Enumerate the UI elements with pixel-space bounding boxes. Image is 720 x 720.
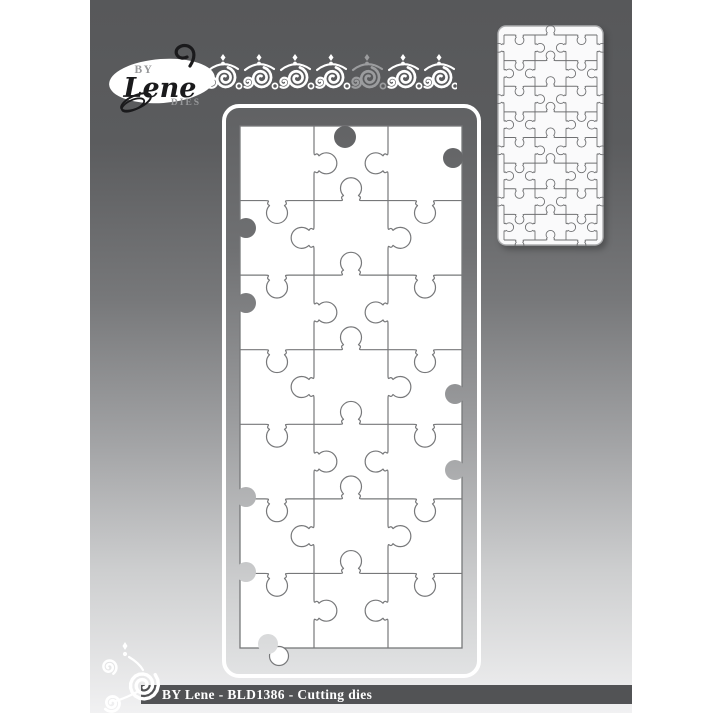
flourish-spiral xyxy=(131,674,159,699)
puzzle-plate xyxy=(240,126,462,648)
product-image-canvas: BY Lene DIES BY Lene - BLD1386 - Cutting… xyxy=(0,0,720,720)
footer-flourish-icon xyxy=(96,640,170,718)
scroll-module-icon xyxy=(424,54,457,89)
socket-hole xyxy=(443,148,463,168)
logo-dies: DIES xyxy=(171,98,201,108)
socket-hole xyxy=(236,293,256,313)
socket-hole xyxy=(236,562,256,582)
socket-hole xyxy=(445,384,465,404)
footer-caption: BY Lene - BLD1386 - Cutting dies xyxy=(162,687,372,702)
socket-hole xyxy=(258,634,278,654)
socket-hole xyxy=(236,218,256,238)
scroll-border-ornament-icon xyxy=(205,54,457,98)
artwork-background: BY Lene DIES BY Lene - BLD1386 - Cutting… xyxy=(90,0,632,713)
socket-hole xyxy=(334,126,356,148)
preview-card xyxy=(498,26,603,245)
scroll-module-icon xyxy=(388,54,421,89)
scroll-module-icon xyxy=(316,54,349,89)
die-preview-thumbnail xyxy=(497,25,604,246)
main-puzzle-die xyxy=(222,104,481,678)
scroll-module-icon xyxy=(352,54,385,89)
socket-hole xyxy=(236,487,256,507)
scroll-module-icon xyxy=(280,54,313,89)
scroll-module-icon xyxy=(244,54,277,89)
footer-bar: BY Lene - BLD1386 - Cutting dies xyxy=(141,685,632,704)
socket-hole xyxy=(445,460,465,480)
scroll-module-icon xyxy=(208,54,241,89)
